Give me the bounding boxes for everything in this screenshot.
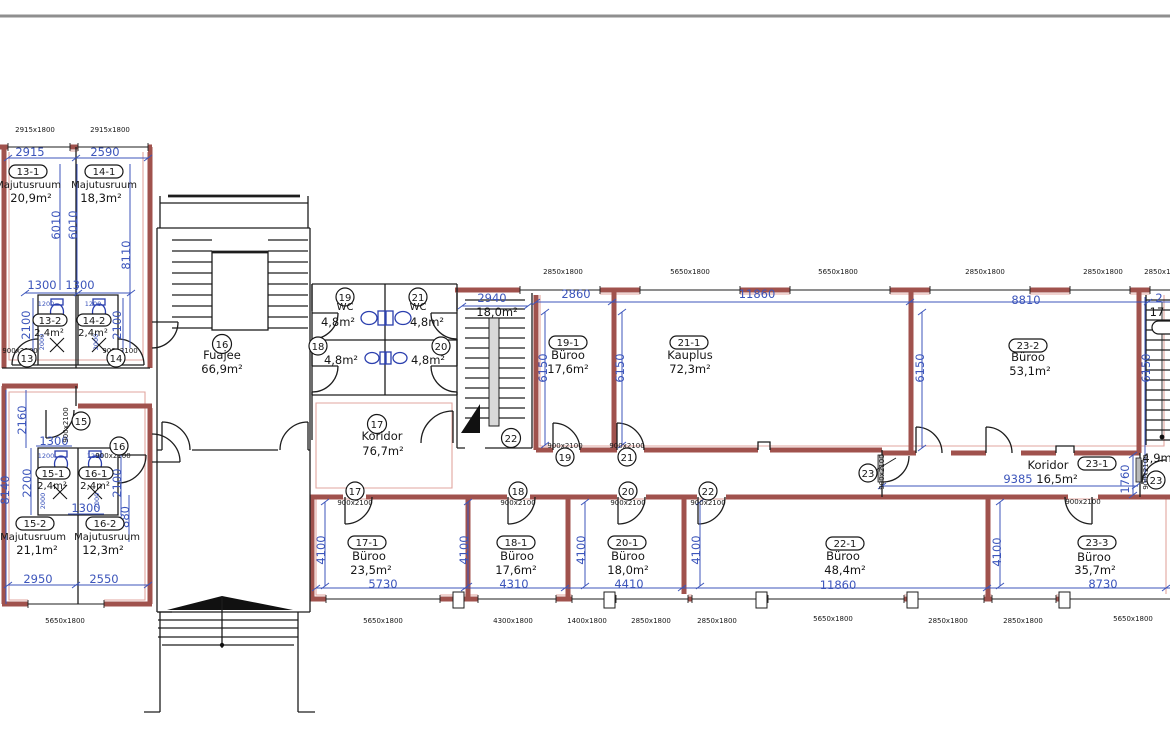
door-tag: 21 xyxy=(621,453,634,464)
room-id: 14-1 xyxy=(93,167,116,178)
room-id: 23-1 xyxy=(1086,459,1109,470)
dim: 8140 xyxy=(0,475,12,504)
room-name: Majutusruum xyxy=(71,180,137,191)
dim: 4100 xyxy=(689,535,703,564)
room-id: 17-1 xyxy=(356,538,379,549)
room-id: 13-2 xyxy=(39,316,62,327)
dim: 1300 xyxy=(65,278,94,292)
room-area: 2,4m² xyxy=(37,481,67,492)
room-area: 16,5m² xyxy=(1036,472,1077,486)
dim: 2200 xyxy=(20,468,34,497)
dim: 6150 xyxy=(613,353,627,382)
room-name: Büroo xyxy=(1011,350,1045,364)
room-id: 15-2 xyxy=(24,519,47,530)
dim-partial: 2 xyxy=(1155,291,1162,305)
window-label: 2850x1800 xyxy=(1144,268,1170,276)
dim: 6150 xyxy=(913,353,927,382)
room-area: 17,6m² xyxy=(495,563,536,577)
room-area: 48,4m² xyxy=(824,563,865,577)
room-area: 20,9m² xyxy=(10,191,51,205)
room-name: Büroo xyxy=(352,549,386,563)
floor-plan-svg: 2915 2590 6010 6010 8110 1300 1300 2100 … xyxy=(0,0,1170,729)
room-id: 18-1 xyxy=(505,538,528,549)
dim: 2000 xyxy=(39,493,47,510)
room-area: 35,7m² xyxy=(1074,563,1115,577)
dim: 2100 xyxy=(110,310,124,339)
room-name: Büroo xyxy=(1077,550,1111,564)
window-label: 5650x1800 xyxy=(818,268,858,276)
room-name: Büroo xyxy=(500,549,534,563)
room-name: Koridor xyxy=(1028,458,1069,472)
room-area: 12,3m² xyxy=(82,543,123,557)
room-area: 18,3m² xyxy=(80,191,121,205)
dim: 5730 xyxy=(368,577,397,591)
room-name: Majutusruum xyxy=(0,180,61,191)
foyer-and-stairs xyxy=(144,196,315,712)
window-label: 5650x1800 xyxy=(363,617,403,625)
dim: 6010 xyxy=(49,210,63,239)
door-label: 900x2100 xyxy=(62,407,70,442)
window-label: 2850x1800 xyxy=(1083,268,1123,276)
room-area: 2,4m² xyxy=(34,328,64,339)
room-id: 16-1 xyxy=(85,469,108,480)
dim: 6010 xyxy=(66,210,80,239)
room-area-partial: 17 xyxy=(1150,305,1165,319)
dim: 1200 xyxy=(38,300,55,308)
dim: 8110 xyxy=(119,240,133,269)
window-label: 5650x1800 xyxy=(1113,615,1153,623)
room-name: Majutusruum xyxy=(0,532,66,543)
room-area: 4,9m xyxy=(1142,451,1170,465)
room-name: Büroo xyxy=(826,549,860,563)
door-tag: 18 xyxy=(512,487,525,498)
room-name: WC xyxy=(410,302,427,313)
dim: 4100 xyxy=(574,535,588,564)
dim: 11860 xyxy=(739,287,776,301)
dim: 2550 xyxy=(89,572,118,586)
room-area: 17,6m² xyxy=(547,362,588,376)
dim: 4100 xyxy=(314,535,328,564)
dim: 9385 xyxy=(1003,472,1032,486)
entrance-canopy xyxy=(167,596,293,610)
window-label: 1400x1800 xyxy=(567,617,607,625)
dim: 4410 xyxy=(614,577,643,591)
door-tag: 17 xyxy=(349,487,362,498)
room-area: 4,8m² xyxy=(321,315,355,329)
room-id: 20-1 xyxy=(616,538,639,549)
floor-plan-page: 2915 2590 6010 6010 8110 1300 1300 2100 … xyxy=(0,0,1170,729)
dim: 2160 xyxy=(15,405,29,434)
dim: 2100 xyxy=(19,310,33,339)
room-id: 20 xyxy=(435,342,448,353)
window-label: 5650x1800 xyxy=(45,617,85,625)
door-tag: 14 xyxy=(110,354,123,365)
door-tag: 20 xyxy=(622,487,635,498)
room-id: 23-3 xyxy=(1086,538,1109,549)
room-area: 66,9m² xyxy=(201,362,242,376)
room-id: 18 xyxy=(312,342,325,353)
dim: 11860 xyxy=(820,578,857,592)
dim: 2000 xyxy=(93,493,101,510)
room-id: 13-1 xyxy=(17,167,40,178)
dim: 4100 xyxy=(990,537,1004,566)
room-name: Fuajee xyxy=(203,348,241,362)
dim: 1760 xyxy=(1118,464,1132,493)
dim: 1200 xyxy=(38,452,55,460)
room-name: Büroo xyxy=(611,549,645,563)
room-name: Majutusruum xyxy=(74,532,140,543)
room-area: 4,8m² xyxy=(411,353,445,367)
dim: 2940 xyxy=(477,291,506,305)
room-area: 18,0m² xyxy=(476,305,517,319)
room-name: Büroo xyxy=(551,348,585,362)
room-name: WC xyxy=(337,302,354,313)
room-id: 14-2 xyxy=(83,316,106,327)
room-id: 22 xyxy=(505,434,518,445)
window-label: 2850x1800 xyxy=(631,617,671,625)
room-name: Kauplus xyxy=(667,348,712,362)
window-label: 2850x1800 xyxy=(543,268,583,276)
door-tag: 13 xyxy=(21,354,34,365)
door-tag: 19 xyxy=(559,453,572,464)
door-label: 900x2100 xyxy=(878,454,886,489)
room-id: 15-1 xyxy=(42,469,65,480)
window-label: 5650x1800 xyxy=(670,268,710,276)
door-tag: 23 xyxy=(862,469,875,480)
window-label: 2850x1800 xyxy=(1003,617,1043,625)
window-label: 2850x1800 xyxy=(928,617,968,625)
room-area: 2,4m² xyxy=(78,328,108,339)
dim: 8810 xyxy=(1011,293,1040,307)
room-area: 4,8m² xyxy=(324,353,358,367)
door-tag: 16 xyxy=(113,442,126,453)
dim: 2590 xyxy=(90,145,119,159)
dim: 1200 xyxy=(85,300,102,308)
room-id: 16-2 xyxy=(94,519,117,530)
door-tag: 23 xyxy=(1150,476,1163,487)
room-name: Koridor xyxy=(362,429,403,443)
door-label: 900x2100 xyxy=(1065,498,1100,506)
window-label: 2850x1800 xyxy=(965,268,1005,276)
room-area: 21,1m² xyxy=(16,543,57,557)
door-tag: 22 xyxy=(702,487,715,498)
dim: 2860 xyxy=(561,287,590,301)
room-area: 72,3m² xyxy=(669,362,710,376)
window-label: 5650x1800 xyxy=(813,615,853,623)
room-area: 2,4m² xyxy=(80,481,110,492)
window-label: 2850x1800 xyxy=(697,617,737,625)
dim: 4310 xyxy=(499,577,528,591)
room-area: 76,7m² xyxy=(362,444,403,458)
window-label: 4300x1800 xyxy=(493,617,533,625)
dim: 2950 xyxy=(23,572,52,586)
dim: 1300 xyxy=(27,278,56,292)
dim: 6150 xyxy=(1139,353,1153,382)
dim: 8730 xyxy=(1088,577,1117,591)
door-number-tags: 13 14 15 16 19 21 17 18 20 22 23 23 xyxy=(18,349,1165,500)
window-label: 2915x1800 xyxy=(15,126,55,134)
room-area: 53,1m² xyxy=(1009,364,1050,378)
room-area: 18,0m² xyxy=(607,563,648,577)
room-area: 4,8m² xyxy=(410,315,444,329)
door-tag: 15 xyxy=(75,417,88,428)
window-label: 2915x1800 xyxy=(90,126,130,134)
dim: 2915 xyxy=(15,145,44,159)
dim: 4100 xyxy=(457,535,471,564)
room-area: 23,5m² xyxy=(350,563,391,577)
